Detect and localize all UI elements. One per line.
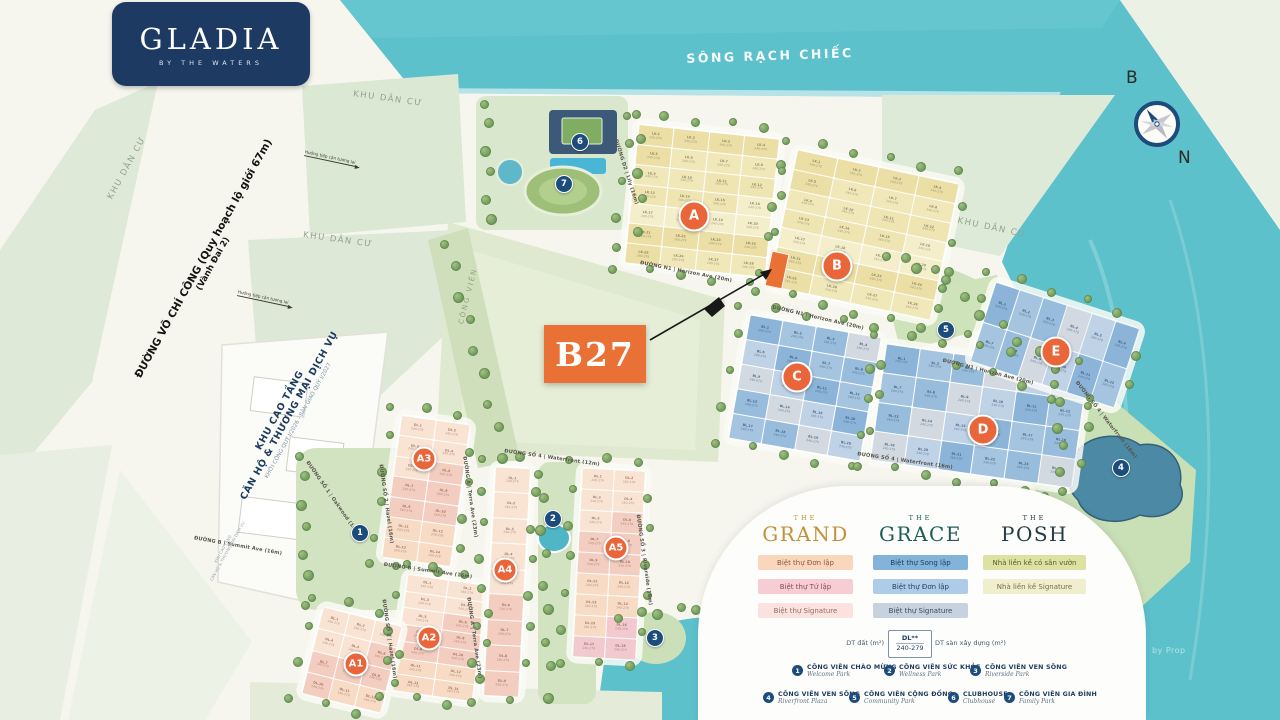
lot-cell[interactable]: DL.1240-279 [495, 467, 530, 493]
tree-icon [453, 411, 462, 420]
tree-icon [764, 232, 773, 241]
zone-marker-B[interactable]: B [822, 251, 853, 282]
legend-chip: Biệt thự Song lập [873, 555, 968, 570]
tree-icon [691, 118, 700, 127]
tree-icon [322, 699, 330, 707]
tree-icon [643, 494, 652, 503]
tree-icon [636, 134, 646, 144]
lot-cell[interactable]: DL.5240-279 [580, 510, 612, 532]
project-logo: GLADIA BY THE WATERS [112, 2, 310, 86]
lot-cell[interactable]: BL.22240-279 [971, 446, 1007, 479]
tree-icon [451, 261, 461, 271]
tree-icon [746, 278, 754, 286]
tree-icon [1112, 308, 1122, 318]
tree-icon [413, 693, 421, 701]
tree-icon [901, 253, 911, 263]
compass-south-label: N [1178, 148, 1191, 168]
tree-icon [782, 137, 790, 145]
tree-icon [931, 265, 940, 274]
lot-cell[interactable]: LK.5240-279 [636, 145, 672, 167]
tree-icon [486, 167, 495, 176]
tree-icon [1059, 441, 1068, 450]
lot-cell[interactable]: BL.1240-279 [883, 345, 919, 378]
lot-cell[interactable]: DL.1240-279 [582, 469, 614, 491]
tree-icon [716, 402, 726, 412]
tree-icon [755, 269, 763, 277]
tree-icon [934, 304, 943, 313]
tree-icon [392, 591, 400, 599]
tree-icon [960, 292, 970, 302]
tree-icon [948, 239, 956, 247]
tree-icon [543, 693, 554, 704]
tree-icon [625, 139, 634, 148]
tree-icon [296, 500, 307, 511]
tree-icon [468, 346, 478, 356]
tree-icon [779, 450, 789, 460]
watermark: by Prop [1152, 646, 1186, 655]
tree-icon [677, 603, 686, 612]
legend-park-number: 5 [849, 692, 860, 703]
future-access-label: Hướng tiếp cận tương lai [304, 149, 356, 167]
tree-icon [1084, 295, 1092, 303]
lot-cell[interactable]: LK.27240-279 [695, 251, 731, 273]
legend-chip: Biệt thự Đơn lập [758, 555, 853, 570]
park-marker-4[interactable]: 4 [1112, 459, 1130, 477]
lot-cell[interactable]: DL.13240-279 [575, 594, 607, 616]
residential-area-label: KHU DÂN CƯ [352, 89, 423, 109]
brand-the: THE [758, 514, 853, 522]
tree-icon [849, 149, 858, 158]
tree-icon [422, 403, 432, 413]
tree-icon [305, 622, 313, 630]
lot-cell[interactable]: DL.15240-279 [574, 615, 606, 637]
legend-park-item: 2CÔNG VIÊN SỨC KHỎEWellness Park [884, 664, 981, 678]
tree-icon [481, 195, 491, 205]
lot-cell[interactable]: BL.11240-279 [1013, 392, 1049, 425]
lot-cell[interactable]: LK.21240-279 [627, 224, 663, 246]
zone-block-A: LK.1240-279LK.2240-279LK.3240-279LK.4240… [623, 123, 781, 279]
tree-icon [534, 470, 543, 479]
tree-icon [1055, 397, 1065, 407]
tree-icon [974, 310, 985, 321]
lot-cell[interactable]: BL.2240-279 [917, 349, 953, 382]
tree-icon [375, 692, 384, 701]
lot-cell[interactable]: LK.8240-279 [741, 156, 777, 178]
legend-chip: Biệt thự Signature [873, 603, 968, 618]
tree-icon [442, 700, 452, 710]
tree-icon [1052, 423, 1063, 434]
tree-icon [440, 240, 449, 249]
tree-icon [907, 331, 917, 341]
tree-icon [522, 659, 530, 667]
tree-icon [541, 638, 550, 647]
tree-icon [1055, 467, 1065, 477]
legend-park-number: 1 [792, 665, 803, 676]
logo-name: GLADIA [139, 22, 282, 56]
tree-icon [751, 287, 760, 296]
tree-icon [726, 366, 734, 374]
lot-cell[interactable]: BL.17240-279 [1009, 421, 1045, 454]
tree-icon [456, 544, 465, 553]
tree-icon [865, 364, 875, 374]
legend-park-name-en: Riverside Park [985, 671, 1067, 678]
lot-cell[interactable]: DL.12240-279 [608, 575, 640, 597]
park-marker-6[interactable]: 6 [571, 133, 589, 151]
tree-icon [556, 625, 566, 635]
legend-park-name-vi: CÔNG VIÊN VEN SÔNG [985, 664, 1067, 671]
tree-icon [484, 118, 494, 128]
tree-icon [474, 554, 484, 564]
tree-icon [1077, 459, 1086, 468]
tree-icon [308, 594, 316, 602]
tree-icon [1125, 380, 1134, 389]
brand-the: THE [873, 514, 968, 522]
legend-park-item: 7CÔNG VIÊN GIA ĐÌNHFamily Park [1004, 691, 1097, 705]
tree-icon [1131, 351, 1141, 361]
tree-icon [395, 650, 404, 659]
tree-icon [506, 696, 514, 704]
tree-icon [999, 320, 1008, 329]
tree-icon [976, 341, 984, 349]
lot-cell[interactable]: DL.2240-279 [493, 493, 528, 519]
tree-icon [625, 661, 635, 671]
tree-icon [457, 514, 467, 524]
tree-icon [480, 146, 491, 157]
legend-park-name-en: Family Park [1019, 698, 1097, 705]
tree-icon [964, 330, 972, 338]
legend-park-item: 6CLUBHOUSEClubhouse [948, 691, 1008, 705]
tree-icon [652, 609, 663, 620]
lot-cell[interactable]: DL.12240-279 [419, 522, 455, 546]
brand-name: GRAND [758, 522, 853, 546]
tree-icon [711, 439, 720, 448]
tree-icon [479, 368, 490, 379]
tree-icon [467, 698, 476, 707]
legend-park-name-en: Community Park [864, 698, 953, 705]
tree-icon [891, 463, 899, 471]
tree-icon [876, 360, 886, 370]
tree-icon [301, 601, 310, 610]
legend-park-name-vi: CÔNG VIÊN VEN SÔNG [778, 691, 860, 698]
tree-icon [875, 390, 884, 399]
legend-park-number: 7 [1004, 692, 1015, 703]
tree-icon [526, 525, 535, 534]
tree-icon [477, 584, 486, 593]
tree-icon [958, 202, 967, 211]
lot-cell[interactable]: LK.3240-279 [708, 132, 744, 154]
lot-cell[interactable]: DL.17240-279 [573, 636, 605, 658]
tree-icon [480, 100, 489, 109]
tree-icon [295, 452, 304, 461]
tree-icon [284, 694, 293, 703]
lot-cell[interactable]: DL.9240-279 [484, 671, 519, 697]
zone-marker-C[interactable]: C [782, 362, 813, 393]
tree-icon [849, 310, 858, 319]
tree-icon [523, 591, 533, 601]
lot-cell[interactable]: DL.14240-279 [607, 596, 639, 618]
tree-icon [759, 123, 769, 133]
lot-cell[interactable]: BL.19240-279 [795, 426, 831, 455]
brand-name: POSH [983, 522, 1086, 546]
lot-cell[interactable]: BL.14240-279 [908, 407, 944, 440]
tree-icon [302, 522, 311, 531]
river-label: SÔNG RẠCH CHIẾC [620, 43, 920, 68]
park-marker-2[interactable]: 2 [544, 510, 562, 528]
park-marker-1[interactable]: 1 [351, 524, 369, 542]
tree-icon [563, 521, 573, 531]
lot-cell[interactable]: LK.6240-279 [671, 148, 707, 170]
tree-icon [633, 227, 643, 237]
zone-marker-A3[interactable]: A3 [412, 447, 437, 472]
lot-cell[interactable]: BL.13240-279 [875, 402, 911, 435]
tree-icon [938, 339, 947, 348]
lot-cell[interactable]: LK.4240-279 [743, 136, 779, 158]
tree-icon [539, 493, 549, 503]
main-road-label: ĐƯỜNG VÕ CHÍ CÔNG (Quy hoạch lộ giới 67m… [116, 107, 300, 415]
legend-brand-posh: THEPOSHNhà liền kề có sân vườnNhà liền k… [983, 514, 1086, 594]
tree-icon [767, 202, 777, 212]
tree-icon [293, 657, 303, 667]
tree-icon [977, 294, 986, 303]
lot-cell[interactable]: DL.8240-279 [485, 645, 520, 671]
tree-icon [569, 485, 577, 493]
tree-icon [634, 458, 643, 467]
tree-icon [483, 400, 492, 409]
legend-brand-grand: THEGRANDBiệt thự Đơn lậpBiệt thự Tứ lậpB… [758, 514, 853, 618]
zone-marker-A4[interactable]: A4 [493, 558, 518, 583]
tree-icon [982, 268, 990, 276]
tree-icon [351, 709, 361, 719]
tree-icon [941, 275, 951, 285]
tree-icon [632, 110, 641, 119]
tree-icon [300, 471, 310, 481]
lot-cell[interactable]: LK.12240-279 [739, 176, 775, 198]
lot-cell[interactable]: DL.18240-279 [605, 638, 637, 660]
tree-icon [453, 292, 464, 303]
tree-icon [542, 549, 551, 558]
zone-block-A5: DL.1240-279DL.2240-279DL.3240-279DL.4240… [571, 466, 647, 661]
future-access-label: Hướng tiếp cận tương lai [237, 289, 289, 307]
compass-north-label: B [1126, 68, 1138, 88]
tree-icon [916, 162, 926, 172]
zone-marker-A5[interactable]: A5 [604, 536, 629, 561]
size-key-left: DT đất (m²) [790, 639, 884, 647]
residential-area-label: KHU DÂN CƯ [957, 216, 1028, 240]
zone-marker-D[interactable]: D [968, 415, 999, 446]
legend-brand-grace: THEGRACEBiệt thự Song lậpBiệt thự Đơn lậ… [873, 514, 968, 618]
tree-icon [1017, 274, 1027, 284]
tree-icon [478, 455, 486, 463]
lot-cell[interactable]: BL.8240-279 [913, 378, 949, 411]
lot-cell[interactable]: DL.7240-279 [487, 620, 522, 646]
tree-icon [921, 470, 931, 480]
lot-cell[interactable]: BL.7240-279 [879, 373, 915, 406]
legend-park-number: 4 [763, 692, 774, 703]
legend-park-item: 5CÔNG VIÊN CỘNG ĐỒNGCommunity Park [849, 691, 953, 705]
tree-icon [595, 658, 603, 666]
lot-cell[interactable]: DL.11240-279 [576, 573, 608, 595]
tree-icon [729, 118, 737, 126]
tree-icon [734, 302, 742, 310]
tree-icon [529, 555, 537, 563]
street-label: ĐƯỜNG A | Terra Ave (23m) [461, 456, 478, 538]
lot-cell[interactable]: LK.23240-279 [697, 231, 733, 253]
legend-park-number: 2 [884, 665, 895, 676]
zone-marker-E[interactable]: E [1041, 337, 1072, 368]
residential-area-label: KHU DÂN CƯ [302, 230, 373, 250]
brand-name: GRACE [873, 522, 968, 546]
tree-icon [612, 243, 621, 252]
masterplan-map: GLADIA BY THE WATERS SÔNG RẠCH CHIẾC B N… [0, 0, 1280, 720]
tree-icon [1058, 487, 1067, 496]
zone-marker-A1[interactable]: A1 [344, 652, 369, 677]
lot-cell[interactable]: BL.17240-279 [729, 414, 765, 443]
lot-cell[interactable]: DL.3240-279 [581, 489, 613, 511]
tree-icon [818, 300, 828, 310]
tree-icon [882, 252, 891, 261]
zone-marker-A2[interactable]: A2 [417, 626, 442, 651]
tree-icon [637, 607, 647, 617]
tree-icon [386, 403, 394, 411]
tree-icon [486, 214, 497, 225]
tree-icon [646, 524, 654, 532]
tree-icon [477, 487, 486, 496]
park-marker-5[interactable]: 5 [937, 321, 955, 339]
tree-icon [386, 431, 394, 439]
tree-icon [778, 167, 786, 175]
tree-icon [954, 166, 963, 175]
tree-icon [1047, 288, 1056, 297]
tree-icon [853, 462, 862, 471]
legend-park-item: 4CÔNG VIÊN VEN SÔNGRiverfront Plaza [763, 691, 860, 705]
tree-icon [494, 422, 504, 432]
tree-icon [1050, 380, 1059, 389]
tree-icon [608, 265, 617, 274]
lot-cell[interactable]: LK.24240-279 [732, 235, 768, 257]
tree-icon [632, 168, 643, 179]
tree-icon [611, 213, 621, 223]
brand-the: THE [983, 514, 1086, 522]
lot-cell[interactable]: LK.17240-279 [629, 204, 665, 226]
legend-park-name-vi: CÔNG VIÊN CỘNG ĐỒNG [864, 691, 953, 698]
size-key-box: DL** 240-279 [888, 630, 932, 658]
tree-icon [659, 111, 669, 121]
lot-cell[interactable]: LK.7240-279 [706, 152, 742, 174]
tree-icon [526, 622, 535, 631]
tree-icon [810, 459, 819, 468]
compass: B N [1112, 66, 1212, 176]
legend-park-number: 6 [948, 692, 959, 703]
size-key-right: DT sàn xây dựng (m²) [935, 639, 1055, 647]
legend-park-name-en: Riverfront Plaza [778, 698, 860, 705]
tree-icon [911, 263, 922, 274]
legend-chip: Nhà liền kề Signature [983, 579, 1086, 594]
lot-cell[interactable]: LK.10240-279 [669, 168, 705, 190]
tree-icon [749, 442, 757, 450]
logo-tagline: BY THE WATERS [159, 59, 263, 67]
lot-cell[interactable]: DL.6240-279 [488, 594, 523, 620]
zone-marker-A[interactable]: A [679, 201, 710, 232]
tree-icon [818, 139, 828, 149]
legend-park-name-vi: CÔNG VIÊN GIA ĐÌNH [1019, 691, 1097, 698]
tree-icon [789, 290, 797, 298]
tree-icon [734, 329, 743, 338]
lot-cell[interactable]: BL.18240-279 [762, 420, 798, 449]
lot-cell[interactable]: DL.4240-279 [612, 491, 644, 513]
tree-icon [365, 559, 374, 568]
tree-icon [864, 394, 873, 403]
legend-chip: Biệt thự Đơn lập [873, 579, 968, 594]
lot-cell[interactable]: BL.23240-279 [1005, 450, 1041, 483]
tree-icon [484, 609, 493, 618]
street-label: ĐƯỜNG B | Summit Ave (16m) [193, 535, 282, 556]
legend-park-name-vi: CÔNG VIÊN SỨC KHỎE [899, 664, 981, 671]
lot-cell[interactable]: DL.9240-279 [578, 552, 610, 574]
lot-cell[interactable]: LK.2240-279 [673, 129, 709, 151]
legend-chip: Nhà liền kề có sân vườn [983, 555, 1086, 570]
legend-park-name-en: Clubhouse [963, 698, 1008, 705]
tree-icon [480, 518, 488, 526]
tree-icon [638, 628, 646, 636]
legend-park-item: 3CÔNG VIÊN VEN SÔNGRiverside Park [970, 664, 1067, 678]
legend-chip: Biệt thự Signature [758, 603, 853, 618]
tree-icon [535, 525, 546, 536]
tree-icon [614, 614, 623, 623]
lot-cell[interactable]: DL.3240-279 [492, 518, 527, 544]
tree-icon [538, 581, 548, 591]
lot-cell[interactable]: DL.2240-279 [613, 470, 645, 492]
tree-icon [566, 551, 575, 560]
tree-icon [887, 153, 895, 161]
lot-callout[interactable]: B27 [544, 325, 646, 383]
tree-icon [887, 314, 895, 322]
tree-icon [916, 323, 926, 333]
legend-park-name-en: Wellness Park [899, 671, 981, 678]
legend-park-name-vi: CLUBHOUSE [963, 691, 1008, 698]
lot-cell[interactable]: LK.11240-279 [704, 172, 740, 194]
lot-cell[interactable]: BL.9240-279 [946, 383, 982, 416]
legend-park-item: 1CÔNG VIÊN CHÀO MỪNGWelcome Park [792, 664, 897, 678]
park-marker-7[interactable]: 7 [555, 175, 573, 193]
tree-icon [623, 112, 631, 120]
tree-icon [777, 191, 786, 200]
tree-icon [466, 315, 475, 324]
tree-icon [602, 453, 612, 463]
residential-area-label: KHU DÂN CƯ [106, 135, 149, 201]
park-marker-3[interactable]: 3 [646, 629, 664, 647]
tree-icon [546, 661, 556, 671]
legend-chip: Biệt thự Tứ lập [758, 579, 853, 594]
tree-icon [1084, 422, 1094, 432]
legend-park-number: 3 [970, 665, 981, 676]
